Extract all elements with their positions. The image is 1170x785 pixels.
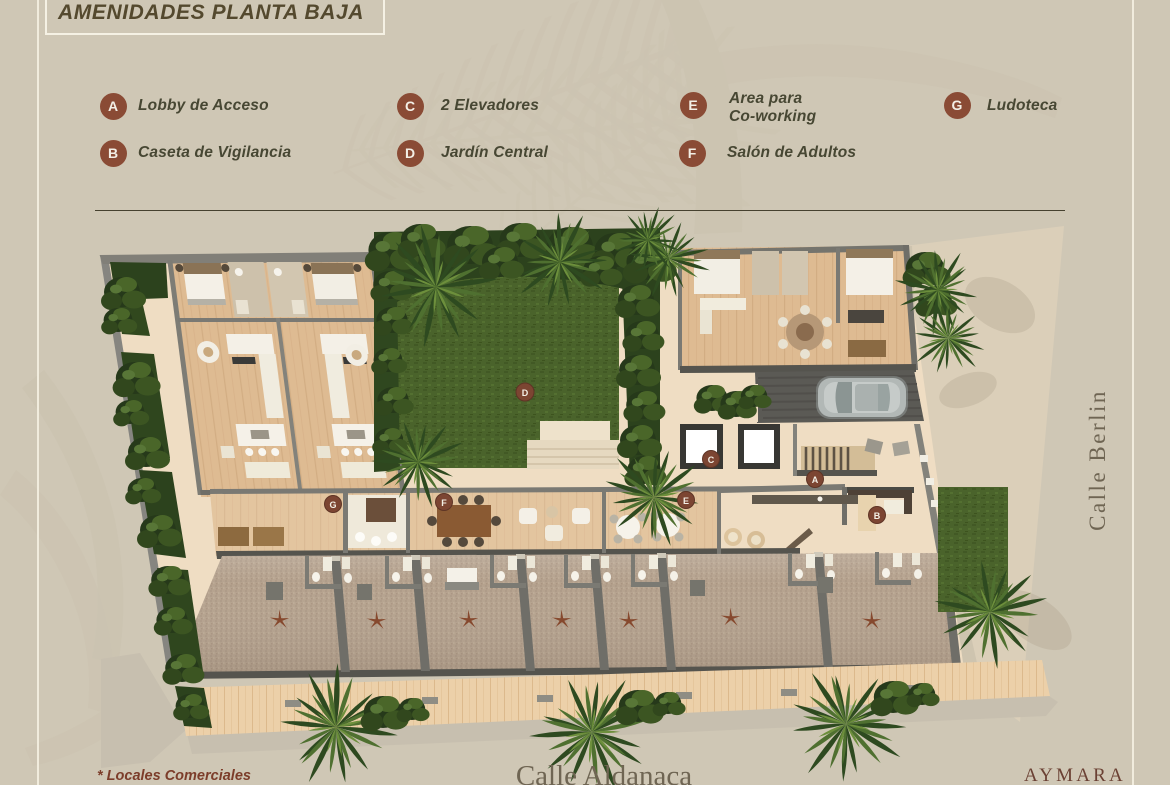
svg-text:D: D bbox=[522, 388, 529, 398]
svg-text:B: B bbox=[874, 511, 881, 521]
svg-text:F: F bbox=[441, 498, 447, 508]
svg-text:A: A bbox=[812, 475, 819, 485]
svg-text:C: C bbox=[708, 455, 715, 465]
svg-text:G: G bbox=[329, 500, 336, 510]
svg-text:E: E bbox=[683, 496, 689, 506]
